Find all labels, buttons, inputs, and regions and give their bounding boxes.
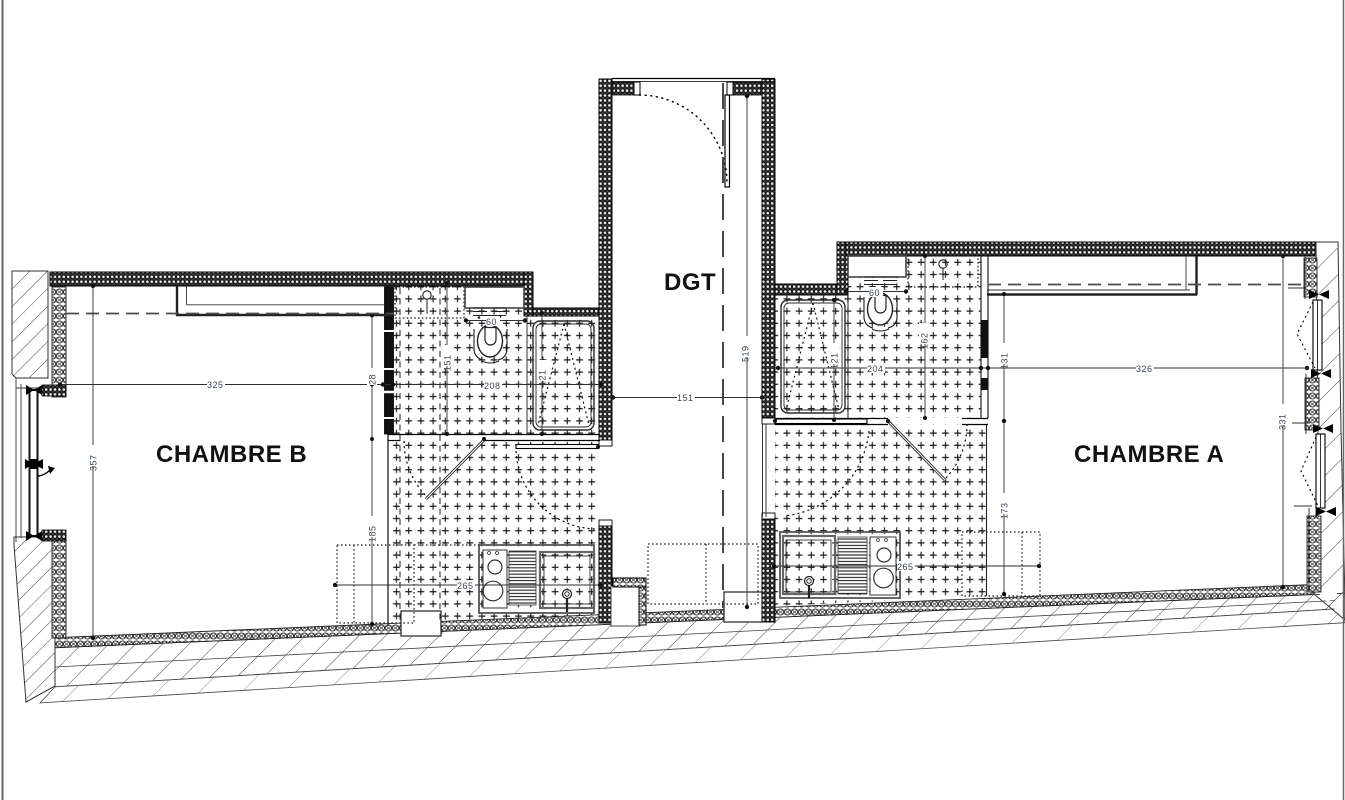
svg-text:173: 173	[1000, 502, 1010, 519]
svg-text:519: 519	[741, 345, 751, 362]
svg-text:185: 185	[368, 525, 378, 542]
svg-text:208: 208	[484, 381, 501, 391]
svg-text:28: 28	[368, 374, 378, 385]
svg-text:60: 60	[869, 288, 880, 298]
svg-text:151: 151	[443, 354, 453, 371]
svg-text:DGT: DGT	[664, 269, 716, 296]
svg-text:326: 326	[1136, 364, 1153, 374]
svg-text:60: 60	[486, 317, 497, 327]
svg-text:357: 357	[89, 454, 99, 471]
svg-text:CHAMBRE B: CHAMBRE B	[156, 441, 307, 468]
svg-text:325: 325	[207, 380, 224, 390]
svg-text:331: 331	[1278, 413, 1288, 430]
svg-text:204: 204	[867, 364, 884, 374]
svg-text:151: 151	[677, 393, 694, 403]
svg-text:265: 265	[897, 562, 914, 572]
svg-text:131: 131	[1000, 352, 1010, 369]
svg-text:CHAMBRE A: CHAMBRE A	[1074, 441, 1224, 468]
svg-text:162: 162	[920, 332, 930, 349]
svg-text:121: 121	[538, 369, 548, 386]
svg-text:121: 121	[830, 352, 840, 369]
svg-text:265: 265	[457, 581, 474, 591]
